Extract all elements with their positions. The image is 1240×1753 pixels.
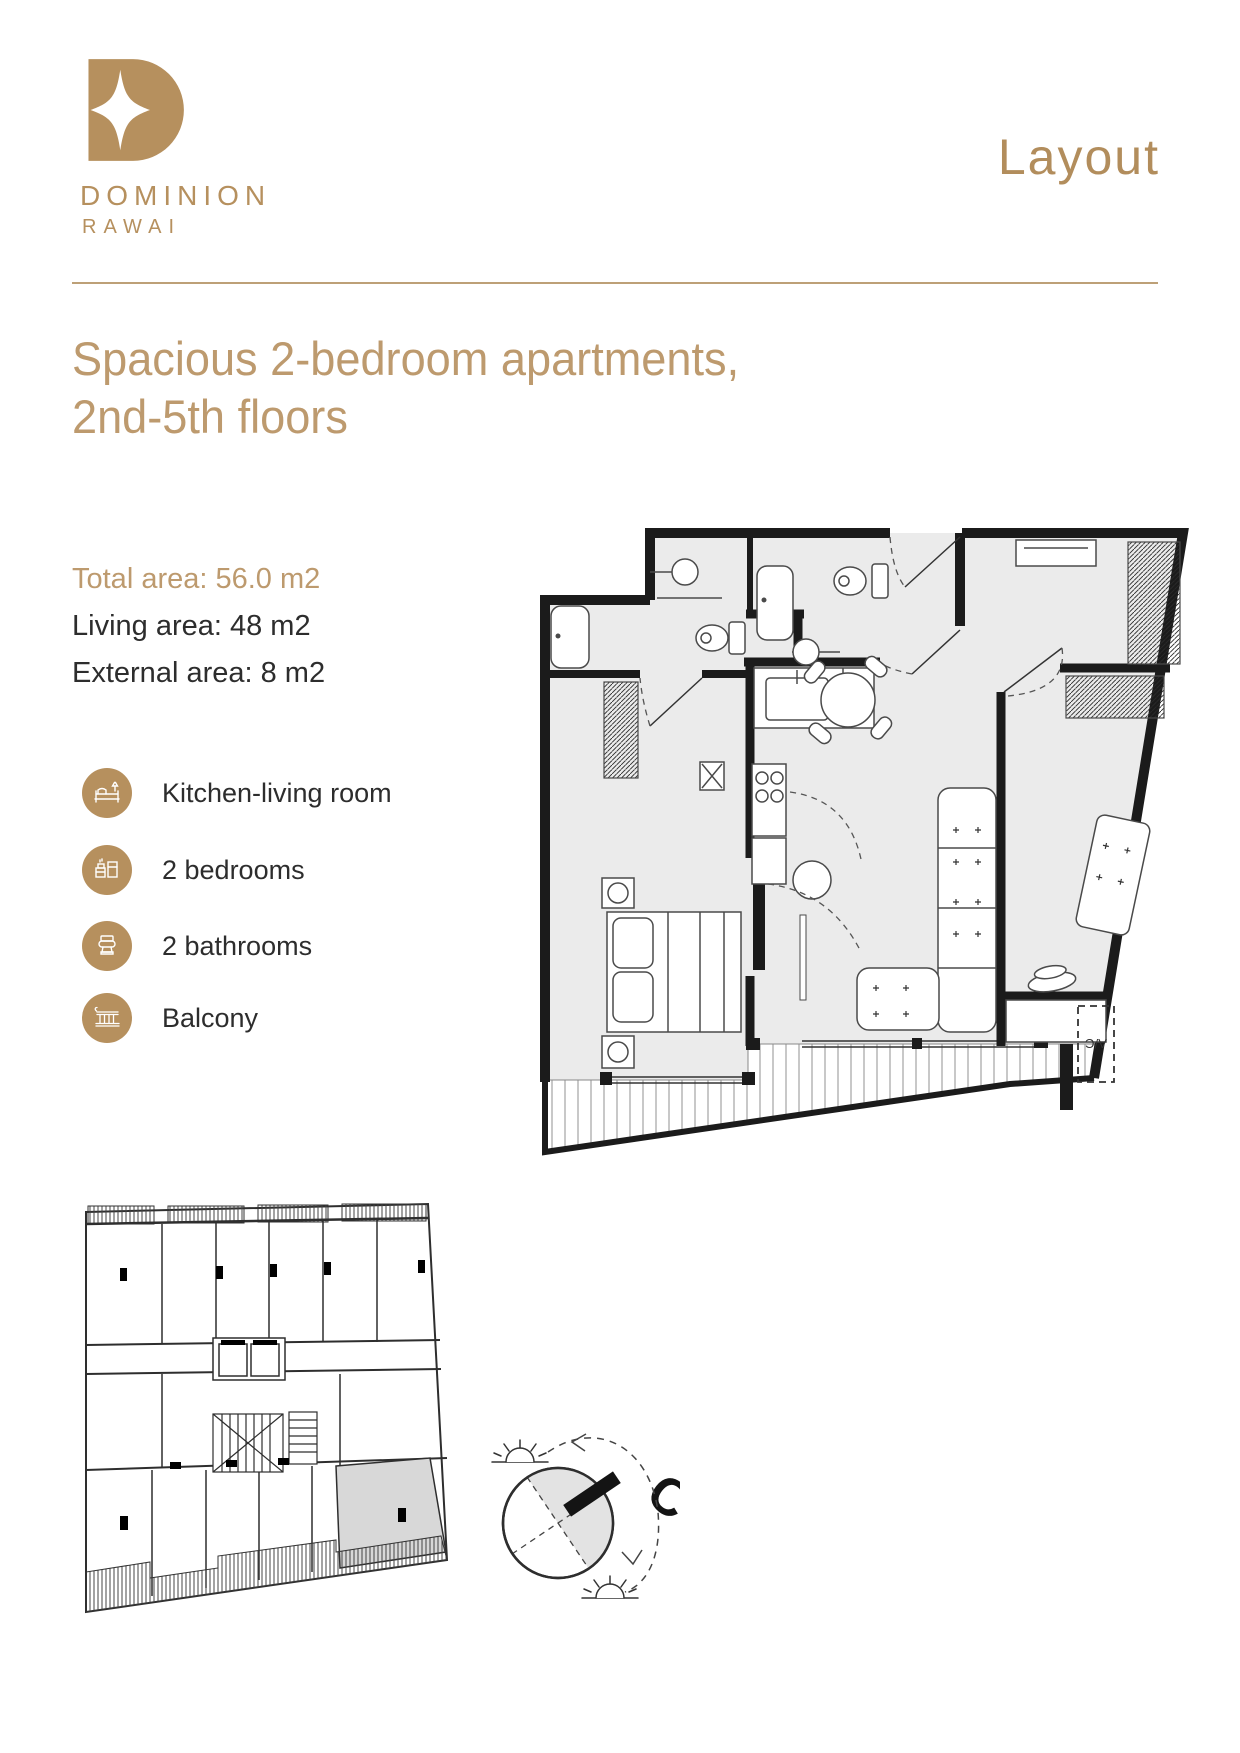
feature-bedrooms: 2 bedrooms — [82, 845, 305, 895]
toilet-icon — [82, 921, 132, 971]
bedroom-door-leaf — [753, 872, 765, 970]
shelf — [1016, 540, 1096, 566]
sunset-icon — [582, 1576, 638, 1598]
arrowhead-bottom — [622, 1550, 642, 1564]
arrowhead-top — [572, 1434, 586, 1451]
building-key-plan — [70, 1195, 460, 1625]
feature-label: 2 bathrooms — [162, 931, 312, 962]
feature-label: 2 bedrooms — [162, 855, 305, 886]
tv-unit — [800, 915, 806, 1000]
brochure-page: DOMINION RAWAI Layout Spacious 2-bedroom… — [0, 0, 1240, 1753]
feature-label: Kitchen-living room — [162, 778, 392, 809]
feature-balcony: Balcony — [82, 993, 258, 1043]
feature-label: Balcony — [162, 1003, 258, 1034]
page-title: Layout — [998, 128, 1160, 186]
dominion-logo-icon — [80, 55, 186, 165]
closet — [1066, 676, 1164, 718]
apartment-floor-plan: A/C — [530, 460, 1200, 1170]
bed-icon — [82, 768, 132, 818]
listing-title-line1: Spacious 2-bedroom apartments, — [72, 330, 739, 388]
listing-title-line2: 2nd-5th floors — [72, 388, 348, 446]
header-divider — [72, 282, 1158, 284]
elevators — [213, 1338, 285, 1380]
feature-kitchen-living: Kitchen-living room — [82, 768, 392, 818]
living-area: Living area: 48 m2 — [72, 610, 311, 643]
feature-bathrooms: 2 bathrooms — [82, 921, 312, 971]
ac-label: A/C — [1085, 1036, 1107, 1051]
bottom-balconies — [86, 1536, 447, 1612]
north-letter: С — [636, 1463, 680, 1532]
side-table — [793, 861, 831, 899]
sunrise-icon — [492, 1440, 548, 1462]
external-area: External area: 8 m2 — [72, 657, 325, 690]
brand-name: DOMINION — [80, 180, 271, 212]
total-area: Total area: 56.0 m2 — [72, 563, 320, 596]
balcony-icon — [82, 993, 132, 1043]
wardrobe — [1128, 542, 1180, 664]
kitchen-icon — [82, 845, 132, 895]
compass-diagram: С — [430, 1380, 680, 1630]
brand-location: RAWAI — [82, 216, 181, 239]
wardrobe — [604, 682, 638, 778]
